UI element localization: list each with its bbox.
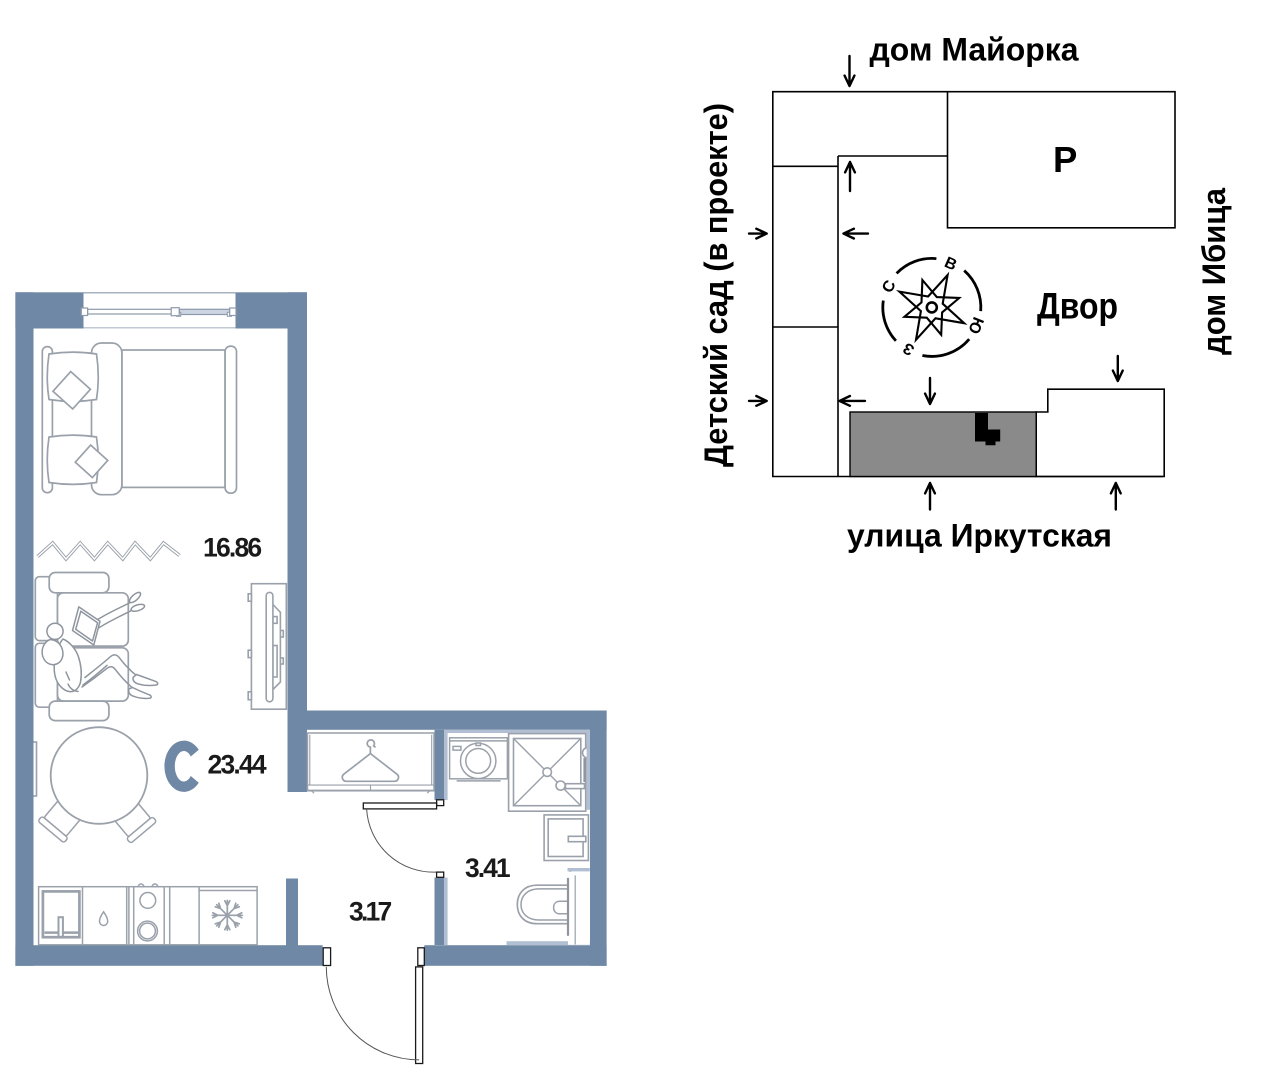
svg-text:Р: Р xyxy=(1053,139,1077,180)
svg-text:дом Майорка: дом Майорка xyxy=(870,32,1079,68)
svg-text:3.41: 3.41 xyxy=(465,853,510,883)
svg-text:16.86: 16.86 xyxy=(203,533,261,563)
svg-text:23.44: 23.44 xyxy=(208,750,267,780)
svg-text:Двор: Двор xyxy=(1037,286,1118,327)
svg-text:Детский сад (в проекте): Детский сад (в проекте) xyxy=(698,103,734,467)
svg-text:улица Иркутская: улица Иркутская xyxy=(847,518,1112,554)
svg-text:3.17: 3.17 xyxy=(349,897,391,927)
svg-text:дом Ибица: дом Ибица xyxy=(1196,188,1232,355)
